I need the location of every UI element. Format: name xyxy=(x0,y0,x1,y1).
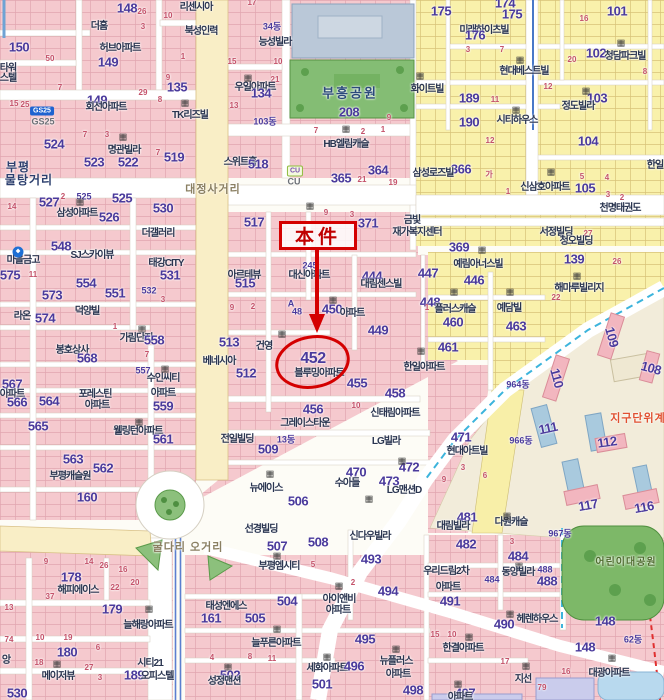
building-name: 리센시아 xyxy=(180,3,213,13)
parcel-number: 488 xyxy=(537,575,557,588)
building-name: 건영 xyxy=(256,342,272,352)
building-icon: ▦ xyxy=(135,418,144,427)
building-name: 플러스캐슬 xyxy=(435,305,476,315)
lot-number: 18 xyxy=(35,659,44,667)
parcel-number: 504 xyxy=(277,595,297,608)
lot-number: 16 xyxy=(562,668,571,676)
parcel-number: 967동 xyxy=(548,530,571,539)
lot-number: 7 xyxy=(58,84,62,92)
building-name: 더홈 xyxy=(91,22,107,32)
building-name: 아파트 xyxy=(448,693,473,700)
parcel-number: 366 xyxy=(451,163,471,176)
parcel-number: 525 xyxy=(112,192,132,205)
parcel-number: 522 xyxy=(118,156,138,169)
parcel-number: 566 xyxy=(7,396,27,409)
building-icon: ▦ xyxy=(329,296,338,305)
building-name: 동양빌라 xyxy=(502,568,535,578)
building-icon: ▦ xyxy=(478,246,487,255)
parcel-number: 565 xyxy=(28,420,48,433)
parcel-number: 108 xyxy=(640,359,663,377)
building-name: TK리즈빌 xyxy=(172,111,208,121)
lot-number: 3 xyxy=(141,23,145,31)
lot-number: 3 xyxy=(466,46,470,54)
building-name: 한결아파트 xyxy=(443,644,484,654)
building-icon: ▦ xyxy=(335,582,344,591)
parcel-number: 139 xyxy=(564,253,584,266)
parcel-number: 551 xyxy=(105,287,125,300)
building-icon: ▦ xyxy=(244,74,253,83)
lot-number: 11 xyxy=(491,96,499,104)
building-name: 아파트 xyxy=(340,309,365,319)
parcel-number: 484 xyxy=(484,576,499,585)
building-icon: ▦ xyxy=(76,198,85,207)
parcel-number: 517 xyxy=(244,216,264,229)
building-icon: ▦ xyxy=(273,552,282,561)
building-name: 삼성아파트 xyxy=(57,209,98,219)
building-icon: ▦ xyxy=(617,39,626,48)
lot-number: 2 xyxy=(620,194,624,202)
parcel-number: 564 xyxy=(39,395,59,408)
building-name: 뉴에이스 xyxy=(250,484,283,494)
parcel-number: 148 xyxy=(117,2,137,15)
lot-number: 9 xyxy=(387,114,391,122)
building-icon: ▦ xyxy=(503,512,512,521)
building-icon: ▦ xyxy=(506,288,515,297)
parcel-number: 175 xyxy=(502,8,522,21)
building-icon: ▦ xyxy=(145,605,154,614)
lot-number: 50 xyxy=(46,55,55,63)
building-name: 선경빌딩 xyxy=(245,525,278,535)
lot-number: 2 xyxy=(351,579,355,587)
building-name: 라온 xyxy=(14,312,30,322)
parcel-number: 470 xyxy=(346,466,366,479)
building-name: 청오빌딩 xyxy=(560,237,593,247)
parcel-number: 102 xyxy=(586,47,606,60)
parcel-number: 491 xyxy=(440,595,460,608)
lot-number: 11 xyxy=(29,271,37,279)
lot-number: 37 xyxy=(46,593,55,601)
building-name: LG빌라 xyxy=(372,437,400,447)
parcel-number: 134 xyxy=(251,87,271,100)
building-icon: ▦ xyxy=(465,633,474,642)
parcel-number: 574 xyxy=(35,312,55,325)
parcel-number: 532 xyxy=(141,287,156,296)
parcel-number: 150 xyxy=(9,41,29,54)
building-icon: ▦ xyxy=(516,56,525,65)
lot-number: 19 xyxy=(389,179,398,187)
building-name: 늘푸른아파트 xyxy=(251,639,300,649)
parcel-number: 190 xyxy=(459,116,479,129)
parcel-number: 62동 xyxy=(624,636,642,645)
lot-number: 3 xyxy=(105,131,109,139)
building-name: 부평엠시티 xyxy=(259,562,300,572)
lot-number: 7 xyxy=(145,351,149,359)
lot-number: 79 xyxy=(538,684,547,692)
lot-number: 13 xyxy=(230,102,239,110)
parcel-number: 48 xyxy=(292,308,302,317)
lot-number: 26 xyxy=(100,562,109,570)
parcel-number: 526 xyxy=(99,211,119,224)
building-name: 더갤러리 xyxy=(142,229,175,239)
building-name: 아파트 xyxy=(326,606,351,616)
lot-number: 11 xyxy=(268,655,276,663)
building-name: 한일 xyxy=(647,161,663,171)
lot-number: 9 xyxy=(44,558,48,566)
lot-number: 15 xyxy=(431,631,440,639)
building-name: 뉴플러스 xyxy=(380,657,413,667)
building-icon: ▦ xyxy=(454,680,463,689)
building-icon: ▦ xyxy=(53,660,62,669)
lot-number: 12 xyxy=(544,83,553,91)
building-name: 화이트빌 xyxy=(411,85,444,95)
building-name: 대림센스빌 xyxy=(361,280,402,290)
parcel-number: 509 xyxy=(258,443,278,456)
lot-number: 2 xyxy=(361,128,365,136)
parcel-number: 515 xyxy=(235,277,255,290)
building-icon: ▦ xyxy=(181,99,190,108)
parcel-number: 498 xyxy=(403,684,423,697)
lot-number: 25 xyxy=(21,101,30,109)
parcel-number: 563 xyxy=(63,453,83,466)
parcel-number: 530 xyxy=(153,202,173,215)
lot-number: 20 xyxy=(568,56,577,64)
lot-number: 7 xyxy=(156,149,160,157)
lot-number: 8 xyxy=(643,68,647,76)
parcel-number: 176 xyxy=(465,29,485,42)
parcel-number: 568 xyxy=(77,352,97,365)
lot-number: 6 xyxy=(483,472,487,480)
lot-number: 3 xyxy=(98,674,102,682)
lot-number: 16 xyxy=(580,15,589,23)
building-name: 청담파크빌 xyxy=(605,52,646,62)
parcel-number: 364 xyxy=(368,164,388,177)
building-name: 수아들 xyxy=(335,479,360,489)
building-name: 지선 xyxy=(515,675,531,685)
building-name: 블루밍아파트 xyxy=(294,369,343,379)
lot-number: 20 xyxy=(131,579,140,587)
street-label: 물탕거리 xyxy=(5,174,53,186)
building-name: 아파트 xyxy=(85,401,110,411)
lot-number: 10 xyxy=(164,12,173,20)
annotation-box: 本件 xyxy=(279,221,357,250)
map-viewport[interactable]: 148175174175101리센시아17261016더홈334동북성인력미래하… xyxy=(0,0,664,700)
building-icon: ▦ xyxy=(512,106,521,115)
parcel-number: 109 xyxy=(603,326,621,349)
lot-number: 13 xyxy=(5,604,14,612)
building-icon: ▦ xyxy=(416,72,425,81)
building-name: 신다우빌라 xyxy=(350,532,391,542)
lot-number: 17 xyxy=(501,658,510,666)
building-name: 그레이스타운 xyxy=(280,419,329,429)
lot-number: 3 xyxy=(161,296,165,304)
building-icon: ▦ xyxy=(522,662,531,671)
lot-number: 3 xyxy=(461,464,465,472)
bank-icon: ◆ xyxy=(13,247,24,258)
parcel-number: 966동 xyxy=(509,437,532,446)
parcel-number: 518 xyxy=(248,158,268,171)
lot-number: 1 xyxy=(381,126,385,134)
building-name: 회선아파트 xyxy=(86,103,127,113)
lot-number: 6 xyxy=(96,644,100,652)
building-icon: ▦ xyxy=(273,625,282,634)
parcel-number: 116 xyxy=(633,499,654,515)
parcel-number: 513 xyxy=(219,336,239,349)
building-name: 정도빌라 xyxy=(562,102,595,112)
building-name: 메이저뷰 xyxy=(42,672,75,682)
lot-number: 22 xyxy=(111,584,120,592)
parcel-number: 456 xyxy=(303,403,323,416)
lot-number: 22 xyxy=(552,294,561,302)
parcel-number: 506 xyxy=(288,495,308,508)
building-icon: ▦ xyxy=(306,202,315,211)
gs25-badge: GS25 xyxy=(30,107,54,116)
lot-number: 27 xyxy=(85,664,94,672)
parcel-number: 180 xyxy=(57,646,77,659)
parcel-number: 482 xyxy=(456,538,476,551)
building-icon: ▦ xyxy=(450,288,459,297)
building-name: 현대아트빌 xyxy=(447,447,488,457)
store-name: GS25 xyxy=(31,118,54,127)
lot-number: 1 xyxy=(425,304,429,312)
building-icon: ▦ xyxy=(266,470,275,479)
lot-number: 9 xyxy=(442,476,446,484)
building-icon: ▦ xyxy=(278,330,287,339)
lot-number: 10 xyxy=(352,402,361,410)
building-name: 세화아파트 xyxy=(307,664,348,674)
parcel-number: 493 xyxy=(361,553,381,566)
parcel-number: 447 xyxy=(418,267,438,280)
annotation-label: 本件 xyxy=(295,222,341,249)
parcel-number: 494 xyxy=(378,585,398,598)
parcel-number: 149 xyxy=(98,56,118,69)
building-icon: ▦ xyxy=(365,495,374,504)
building-name: SJ스카이뷰 xyxy=(70,251,113,261)
lot-number: 1 xyxy=(113,323,117,331)
lot-number: 14 xyxy=(8,203,17,211)
building-name: 수인씨티 xyxy=(147,374,180,384)
parcel-number: 458 xyxy=(385,387,405,400)
lot-number: 10 xyxy=(36,634,45,642)
street-label: 굴다리 오거리 xyxy=(153,543,224,554)
building-name: 대광아파트 xyxy=(589,669,630,679)
building-name: 마을금고 xyxy=(7,256,40,266)
parcel-number: 369 xyxy=(449,241,469,254)
parcel-number: 527 xyxy=(39,196,59,209)
building-name: LG맨션D xyxy=(387,486,422,496)
lot-number: 14 xyxy=(85,558,94,566)
building-name: 포레스틴 xyxy=(79,390,112,400)
lot-number: 8 xyxy=(248,653,252,661)
lot-number: 4 xyxy=(605,174,609,182)
building-name: 금빛 xyxy=(404,216,420,226)
building-icon: ▦ xyxy=(342,125,351,134)
building-name: 아파트 xyxy=(436,583,461,593)
parcel-number: 148 xyxy=(595,615,615,628)
lot-number: 17 xyxy=(248,0,257,7)
parcel-number: 371 xyxy=(358,217,378,230)
building-icon: ▦ xyxy=(398,457,407,466)
building-name: 재가복지센터 xyxy=(392,228,441,238)
street-label: 부평 xyxy=(6,161,30,173)
lot-number: 7 xyxy=(500,46,504,54)
lot-number: 2 xyxy=(251,303,255,311)
parcel-number: 175 xyxy=(431,5,451,18)
lot-number: 7 xyxy=(83,131,87,139)
labels-layer: 148175174175101리센시아17261016더홈334동북성인력미래하… xyxy=(0,0,664,700)
building-name: 신태림아파트 xyxy=(370,409,419,419)
parcel-number: 561 xyxy=(153,433,173,446)
parcel-number: 505 xyxy=(245,612,265,625)
building-icon: ▦ xyxy=(573,272,582,281)
building-name: 삼성로즈빌 xyxy=(413,169,454,179)
parcel-number: 13동 xyxy=(277,436,295,445)
lot-number: 2 xyxy=(61,193,65,201)
parcel-number: 463 xyxy=(506,320,526,333)
building-name: 대림빌라 xyxy=(437,522,470,532)
building-name: 아파트 xyxy=(386,670,411,680)
building-name: 베네시아 xyxy=(203,357,236,367)
store-name: CU xyxy=(288,178,301,187)
parcel-number: 112 xyxy=(596,434,617,450)
parcel-number: 446 xyxy=(464,274,484,287)
parcel-number: 148 xyxy=(575,641,595,654)
lot-number: 9 xyxy=(324,209,328,217)
parcel-number: 189 xyxy=(459,92,479,105)
parcel-number: 208 xyxy=(339,106,359,119)
lot-number: 16 xyxy=(119,566,128,574)
lot-number: 15 xyxy=(228,58,237,66)
lot-number: 1 xyxy=(506,188,510,196)
parcel-number: 135 xyxy=(167,81,187,94)
parcel-number: 365 xyxy=(331,172,351,185)
parcel-number: 101 xyxy=(607,5,627,18)
lot-number: 9 xyxy=(230,304,234,312)
parcel-number: 471 xyxy=(451,431,471,444)
building-name: 성정맨션 xyxy=(208,677,241,687)
building-name: 우리드림2차 xyxy=(423,567,469,577)
parcel-number: 178 xyxy=(61,571,81,584)
building-icon: ▦ xyxy=(417,347,426,356)
park-label: 부흥공원 xyxy=(322,87,378,100)
parcel-number: 110 xyxy=(548,367,566,389)
building-name: 덕양빌 xyxy=(75,307,100,317)
building-icon: ▦ xyxy=(582,87,591,96)
parcel-number: 559 xyxy=(153,400,173,413)
lot-number: 3 xyxy=(350,211,354,219)
lot-number: 7 xyxy=(314,127,318,135)
building-name: 아이앤비 xyxy=(323,595,356,605)
building-icon: ▦ xyxy=(392,645,401,654)
lot-number: 10 xyxy=(274,58,283,66)
lot-number: 19 xyxy=(64,634,73,642)
park-label: 어린이대공원 xyxy=(595,558,656,568)
lot-number: 74 xyxy=(5,636,14,644)
parcel-number: 512 xyxy=(236,367,256,380)
lot-number: 4 xyxy=(210,654,214,662)
lot-number: 3 xyxy=(606,191,610,199)
building-icon: ▦ xyxy=(323,653,332,662)
parcel-number: 558 xyxy=(144,334,164,347)
parcel-number: 562 xyxy=(93,462,113,475)
building-name: 신삼호아파트 xyxy=(520,183,569,193)
lot-number: 29 xyxy=(139,89,148,97)
parcel-number: 573 xyxy=(42,289,62,302)
lot-number: 가 xyxy=(485,171,492,179)
parcel-number: 548 xyxy=(51,240,71,253)
building-name: 부평캐슬원 xyxy=(50,472,91,482)
building-name: 현대베스트빌 xyxy=(499,67,548,77)
parcel-number: 501 xyxy=(312,678,332,691)
building-name: 해마루빌리지 xyxy=(554,284,603,294)
building-name: HB엘림캐슬 xyxy=(323,140,368,150)
lot-number: 26 xyxy=(613,258,622,266)
parcel-number: 554 xyxy=(76,277,96,290)
parcel-number: 103동 xyxy=(253,118,276,127)
building-icon: ▦ xyxy=(161,365,170,374)
parcel-number: 496 xyxy=(344,660,364,673)
building-name: 해피에이스 xyxy=(58,586,99,596)
lot-number: 8 xyxy=(158,96,162,104)
parcel-number: 575 xyxy=(0,269,20,282)
parcel-number: 530 xyxy=(7,687,27,700)
parcel-number: 964동 xyxy=(506,381,529,390)
building-name: 스텔 xyxy=(0,74,16,84)
parcel-number: 523 xyxy=(84,156,104,169)
parcel-number: 160 xyxy=(77,491,97,504)
building-name: 대신아파트 xyxy=(289,271,330,281)
building-name: 오피스텔 xyxy=(141,672,174,682)
parcel-number: 179 xyxy=(102,603,122,616)
parcel-number: 161 xyxy=(201,612,221,625)
lot-number: 15 xyxy=(10,100,19,108)
lot-number: 21 xyxy=(358,176,367,184)
cu-badge: CU xyxy=(287,166,303,177)
parcel-number: 460 xyxy=(443,316,463,329)
building-name: 능성빌라 xyxy=(259,38,292,48)
building-name: 헤렌하우스 xyxy=(517,615,558,625)
parcel-number: 117 xyxy=(577,497,598,513)
lot-number: 5 xyxy=(311,561,315,569)
street-label: 대정사거리 xyxy=(185,185,241,196)
building-name: 아파트 xyxy=(151,389,176,399)
building-name: 앙 xyxy=(2,656,10,666)
parcel-number: 34동 xyxy=(263,23,281,32)
building-name: 예림아너스빌 xyxy=(453,260,502,270)
building-icon: ▦ xyxy=(608,654,617,663)
lot-number: 10 xyxy=(448,631,457,639)
district-plan-label: 지구단위계 xyxy=(610,414,664,425)
parcel-number: 495 xyxy=(355,633,375,646)
parcel-number: 508 xyxy=(308,536,328,549)
parcel-number: 111 xyxy=(537,420,558,437)
lot-number: 26 xyxy=(138,8,147,16)
building-name: 허브아파트 xyxy=(100,44,141,54)
building-name: 한일아파트 xyxy=(404,363,445,373)
building-icon: ▦ xyxy=(547,168,556,177)
lot-number: 3 xyxy=(510,538,514,546)
building-name: 예담빌 xyxy=(497,304,522,314)
parcel-number: 490 xyxy=(494,618,514,631)
parcel-number: 449 xyxy=(368,324,388,337)
building-name: 북성인력 xyxy=(185,27,218,37)
lot-number: 12 xyxy=(486,137,495,145)
building-name: 천명태권도 xyxy=(600,204,641,214)
parcel-number: 531 xyxy=(160,269,180,282)
parcel-number: 519 xyxy=(164,151,184,164)
parcel-number: 104 xyxy=(578,135,598,148)
building-icon: ▦ xyxy=(119,133,128,142)
building-name: 전일빌딩 xyxy=(221,435,254,445)
